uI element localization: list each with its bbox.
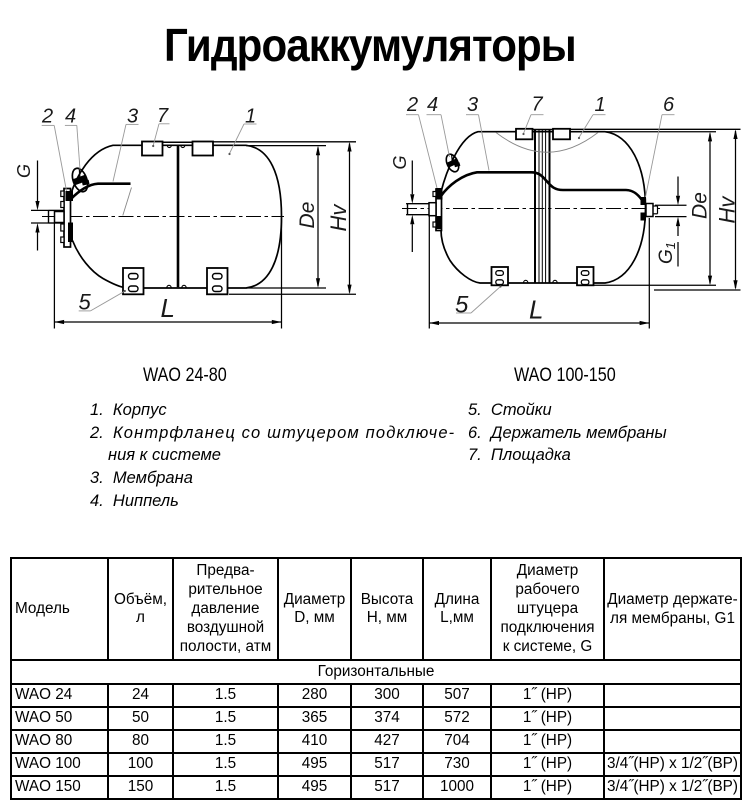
svg-text:Hv: Hv [715, 195, 740, 224]
svg-text:1: 1 [595, 94, 606, 116]
svg-text:3: 3 [467, 94, 478, 116]
svg-text:5: 5 [79, 290, 92, 315]
svg-text:L: L [529, 295, 543, 325]
svg-text:7: 7 [157, 105, 169, 127]
svg-text:G1: G1 [656, 242, 678, 264]
svg-text:G: G [390, 155, 410, 169]
svg-text:De: De [689, 192, 712, 219]
svg-text:2: 2 [406, 94, 418, 116]
svg-text:6: 6 [663, 94, 675, 116]
svg-text:2: 2 [41, 106, 53, 128]
svg-text:4: 4 [65, 106, 76, 128]
svg-text:G: G [14, 164, 34, 178]
svg-text:Hv: Hv [326, 203, 351, 232]
svg-text:3: 3 [127, 106, 138, 128]
svg-text:1: 1 [245, 106, 256, 128]
svg-text:4: 4 [427, 94, 438, 116]
svg-text:L: L [161, 293, 175, 323]
svg-text:7: 7 [532, 94, 544, 116]
svg-text:5: 5 [455, 292, 469, 319]
svg-text:De: De [296, 202, 319, 229]
